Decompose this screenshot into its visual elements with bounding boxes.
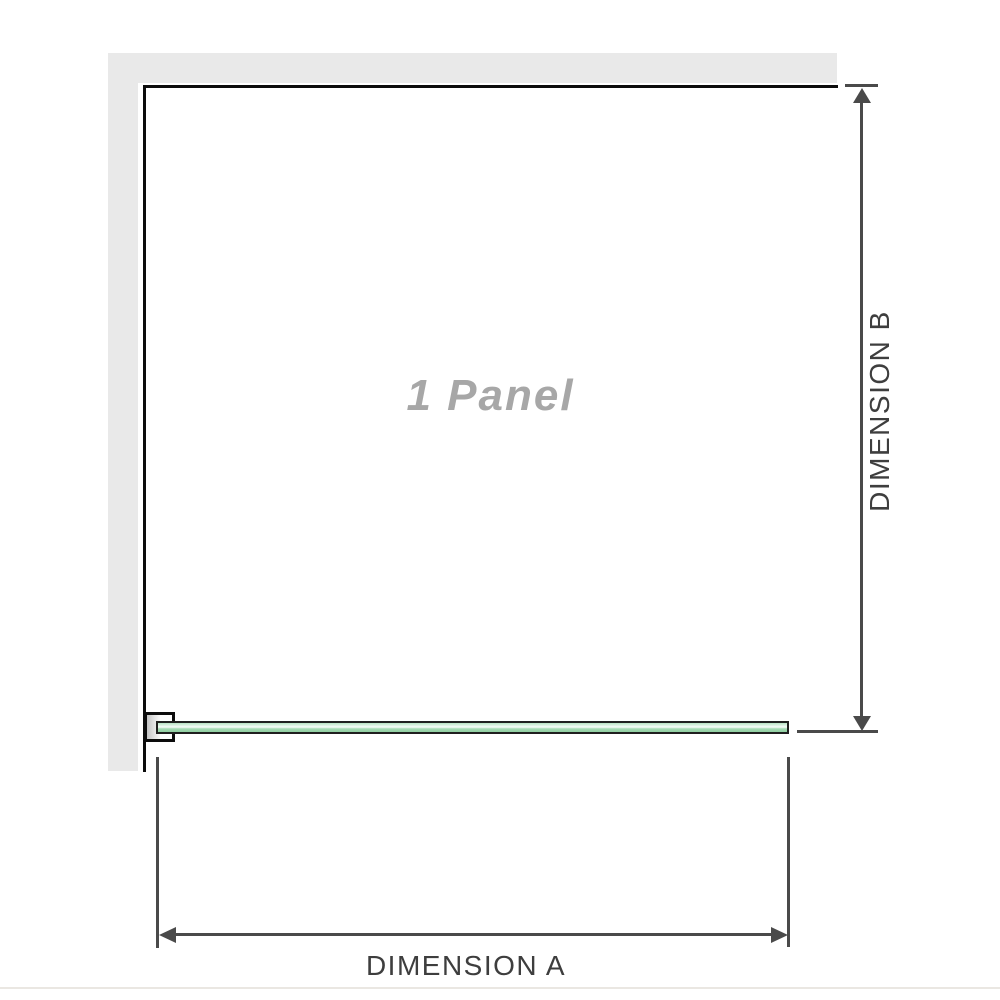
dimension-b-tick-top [845, 84, 878, 87]
baseline-rule [0, 987, 1000, 989]
arrow-left-icon [159, 927, 176, 943]
dimension-diagram: 1 Panel DIMENSION B DIMENSION A [0, 0, 1000, 1000]
dimension-a-label: DIMENSION A [156, 950, 776, 982]
dimension-b-line [860, 98, 863, 723]
panel-outline-left [143, 85, 146, 772]
arrow-down-icon [853, 716, 871, 731]
wall-left-strip [108, 53, 138, 771]
dimension-b-label: DIMENSION B [864, 310, 896, 512]
dimension-a-line [173, 933, 774, 936]
panel-outline-top [143, 85, 838, 88]
arrow-right-icon [771, 927, 788, 943]
dimension-a-extension-right [787, 757, 790, 947]
panel-count-label: 1 Panel [143, 371, 838, 421]
wall-top-strip [108, 53, 837, 83]
arrow-up-icon [853, 88, 871, 103]
glass-panel [156, 721, 789, 734]
dimension-a-extension-left [156, 757, 159, 948]
